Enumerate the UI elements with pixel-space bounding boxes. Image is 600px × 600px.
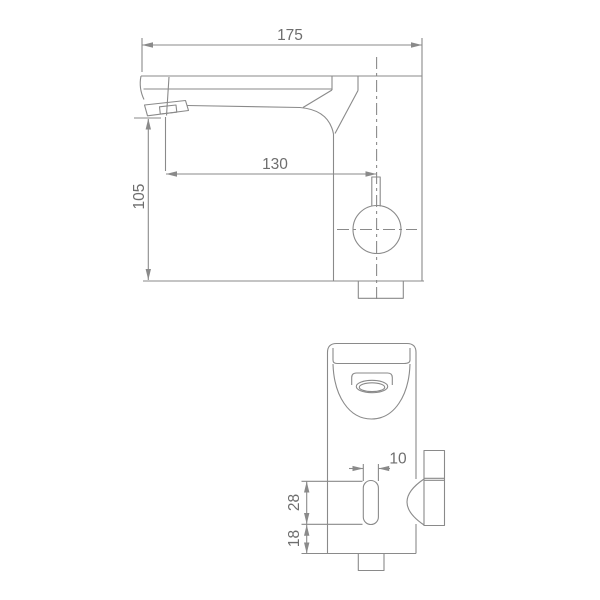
arrow-10-right [378, 466, 389, 471]
underside-diagonal [303, 90, 332, 108]
arrow-28-bottom [304, 513, 309, 524]
handle-neck-arc [407, 479, 424, 525]
neck-front-diagonal [335, 91, 358, 134]
dim-105-label: 105 [131, 184, 148, 210]
dim-130-label: 130 [262, 156, 288, 173]
body-outline-left-top-right [328, 344, 417, 554]
dim-10-label: 10 [389, 451, 407, 468]
handle-body [424, 451, 445, 526]
drawing-canvas: 175 130 105 10 28 18 [0, 0, 600, 600]
dim-175-label: 175 [277, 27, 303, 44]
arrow-175-left [142, 42, 153, 47]
spout-bottom-contour [187, 106, 334, 135]
aerator-rim-outer [356, 380, 387, 392]
arrow-105-top [146, 119, 151, 130]
shank-side [358, 281, 403, 298]
arrow-130-right [366, 171, 377, 176]
arrow-18-top [304, 525, 309, 536]
arrow-175-right [411, 42, 422, 47]
spout-tip-curve [140, 76, 144, 100]
line-work [134, 38, 445, 571]
dim-28-label: 28 [286, 494, 303, 511]
spout-inner-contour [333, 348, 410, 364]
plan-view [302, 344, 445, 571]
stem-outline [372, 177, 380, 207]
arrow-10-left [353, 466, 364, 471]
sensor-slot [363, 481, 378, 525]
aerator-axis-line [167, 77, 170, 116]
dim-18-label: 18 [286, 530, 303, 547]
arrow-18-bottom [304, 543, 309, 554]
arrow-130-left [166, 171, 177, 176]
faucet-dimension-drawing: 175 130 105 10 28 18 [0, 0, 600, 600]
arrow-28-top [304, 482, 309, 493]
aerator-notch [160, 105, 177, 114]
shank-plan [358, 554, 384, 571]
arrow-105-bottom [146, 269, 151, 280]
aerator-rim-inner [359, 383, 384, 392]
